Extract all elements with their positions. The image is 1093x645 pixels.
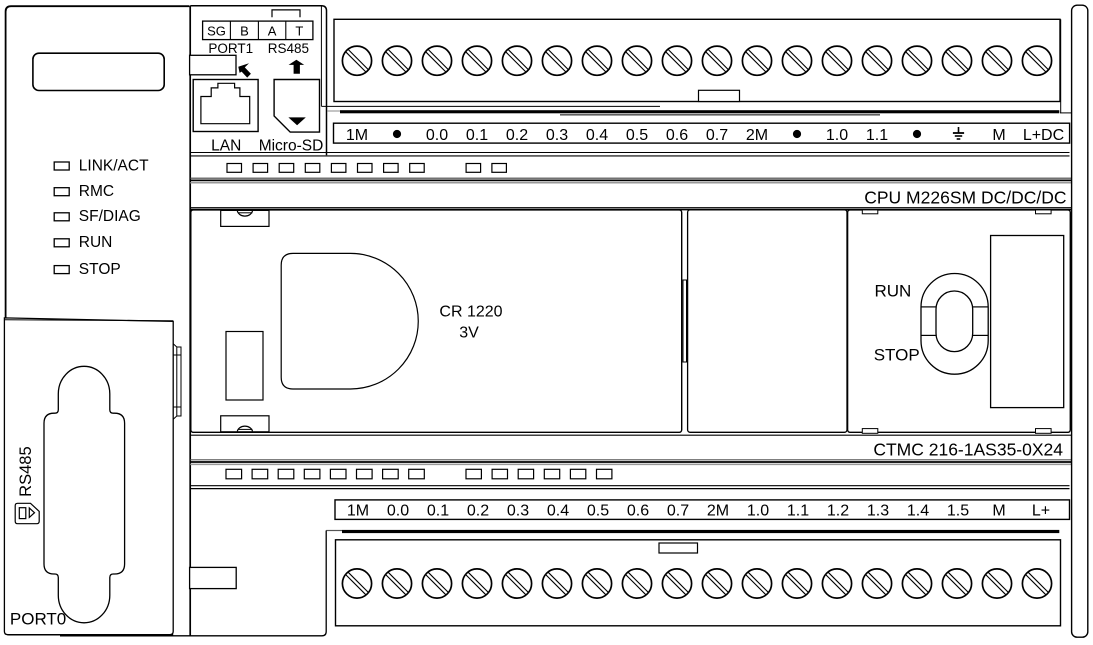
svg-text:SG: SG: [207, 24, 226, 39]
svg-text:RS485: RS485: [17, 446, 35, 496]
svg-text:LINK/ACT: LINK/ACT: [79, 157, 149, 174]
svg-text:0.1: 0.1: [427, 502, 449, 519]
svg-text:SF/DIAG: SF/DIAG: [79, 208, 141, 225]
svg-text:B: B: [240, 24, 249, 39]
svg-text:0.7: 0.7: [706, 127, 728, 144]
svg-text:0.5: 0.5: [587, 502, 609, 519]
svg-text:0.3: 0.3: [507, 502, 529, 519]
svg-text:PORT0: PORT0: [10, 610, 66, 629]
svg-text:1M: 1M: [346, 127, 368, 144]
svg-text:RUN: RUN: [79, 234, 113, 251]
svg-text:0.6: 0.6: [627, 502, 649, 519]
svg-text:CTMC 216-1AS35-0X24: CTMC 216-1AS35-0X24: [873, 439, 1063, 459]
svg-text:RMC: RMC: [79, 183, 114, 200]
svg-text:T: T: [295, 24, 303, 39]
svg-text:0.2: 0.2: [506, 127, 528, 144]
svg-text:PORT1: PORT1: [208, 41, 253, 56]
svg-text:1.0: 1.0: [747, 502, 769, 519]
svg-text:0.3: 0.3: [546, 127, 568, 144]
svg-text:1.4: 1.4: [907, 502, 929, 519]
svg-text:0.6: 0.6: [666, 127, 688, 144]
svg-text:STOP: STOP: [79, 261, 121, 278]
svg-text:0.0: 0.0: [387, 502, 409, 519]
svg-text:0.5: 0.5: [626, 127, 648, 144]
svg-text:L+DC: L+DC: [1023, 127, 1064, 144]
svg-text:0.7: 0.7: [667, 502, 689, 519]
svg-text:M: M: [992, 127, 1005, 144]
svg-text:0.1: 0.1: [466, 127, 488, 144]
svg-text:0.2: 0.2: [467, 502, 489, 519]
svg-text:1.5: 1.5: [947, 502, 969, 519]
svg-text:2M: 2M: [746, 127, 768, 144]
svg-text:1M: 1M: [347, 502, 369, 519]
svg-text:1.0: 1.0: [826, 127, 848, 144]
svg-text:0.4: 0.4: [586, 127, 608, 144]
svg-text:0.4: 0.4: [547, 502, 569, 519]
svg-text:0.0: 0.0: [426, 127, 448, 144]
svg-text:STOP: STOP: [874, 346, 920, 365]
svg-text:RUN: RUN: [874, 282, 911, 301]
svg-text:CPU M226SM DC/DC/DC: CPU M226SM DC/DC/DC: [864, 188, 1066, 208]
svg-text:3V: 3V: [459, 325, 479, 342]
svg-text:RS485: RS485: [268, 41, 309, 56]
svg-text:1.1: 1.1: [866, 127, 888, 144]
svg-text:1.1: 1.1: [787, 502, 809, 519]
svg-text:1.3: 1.3: [867, 502, 889, 519]
svg-text:M: M: [992, 502, 1005, 519]
svg-text:LAN: LAN: [211, 137, 241, 154]
svg-text:1.2: 1.2: [827, 502, 849, 519]
svg-text:L+: L+: [1032, 502, 1050, 519]
svg-text:2M: 2M: [707, 502, 729, 519]
svg-text:A: A: [268, 24, 277, 39]
svg-text:CR 1220: CR 1220: [439, 303, 502, 320]
svg-text:Micro-SD: Micro-SD: [259, 137, 324, 154]
